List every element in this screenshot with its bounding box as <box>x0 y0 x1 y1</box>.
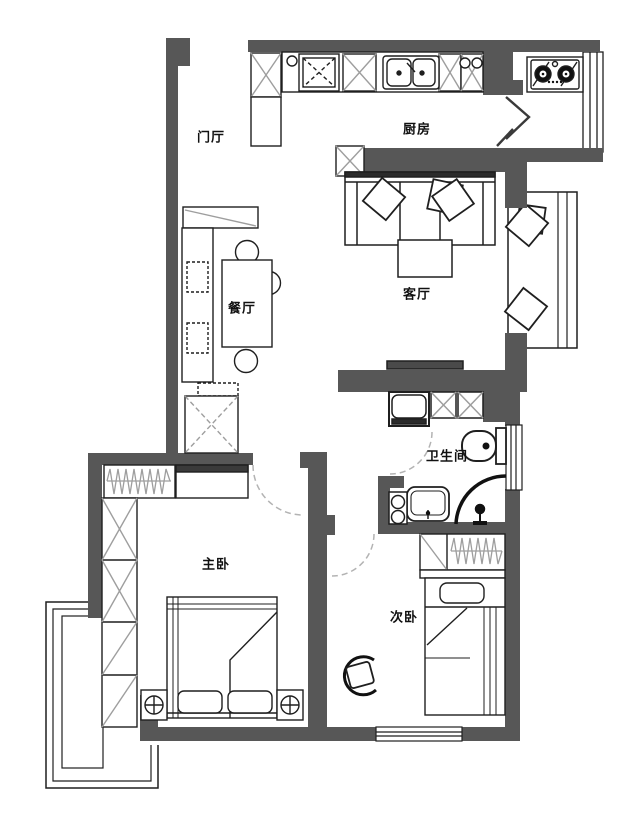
master-bed-icon <box>167 597 277 718</box>
wash-basin-icon <box>407 487 449 521</box>
bath-cabinets-icon <box>431 392 483 418</box>
floor-plan: 门厅 厨房 餐厅 客厅 卫生间 主卧 次卧 <box>0 0 640 822</box>
wardrobe-column-icon <box>102 498 137 727</box>
living-furniture <box>345 172 495 369</box>
bay-window-living <box>505 192 577 348</box>
storage-closet-icon <box>185 396 238 453</box>
second-bedroom-door-arc <box>332 534 374 576</box>
single-bed-icon <box>425 578 505 715</box>
wardrobe-rail-icon <box>420 534 505 578</box>
room-label-kitchen: 厨房 <box>403 119 431 138</box>
window-bathroom <box>506 425 522 490</box>
window-stove-alcove <box>583 52 603 152</box>
dining-furniture <box>182 207 281 453</box>
chair-icon <box>344 657 376 695</box>
walls <box>88 38 603 741</box>
window-second-bedroom <box>376 727 462 741</box>
room-label-entry: 门厅 <box>197 127 225 146</box>
room-label-master-bedroom: 主卧 <box>202 554 230 573</box>
master-door-arc <box>253 465 303 515</box>
opening-symbol-icon <box>497 97 529 146</box>
second-bedroom-furniture <box>344 534 505 715</box>
floor-plan-drawing <box>0 0 640 822</box>
closet-rail-icon <box>104 465 248 498</box>
toilet-icon <box>462 428 506 464</box>
room-label-bathroom: 卫生间 <box>426 446 468 465</box>
tv-console-icon <box>387 361 463 369</box>
shower-head-icon <box>473 505 487 526</box>
coffee-table-icon <box>398 240 452 277</box>
kitchen-sink-icon <box>383 56 439 89</box>
side-unit-icon <box>389 492 407 524</box>
sofa-icon <box>345 172 495 245</box>
room-label-dining: 餐厅 <box>228 298 256 317</box>
shoe-cabinet-icon <box>183 207 258 228</box>
fridge-cabinet-icon <box>251 53 281 146</box>
room-label-living: 客厅 <box>403 284 431 303</box>
room-label-second-bedroom: 次卧 <box>390 607 418 626</box>
washing-machine-icon <box>389 392 429 426</box>
